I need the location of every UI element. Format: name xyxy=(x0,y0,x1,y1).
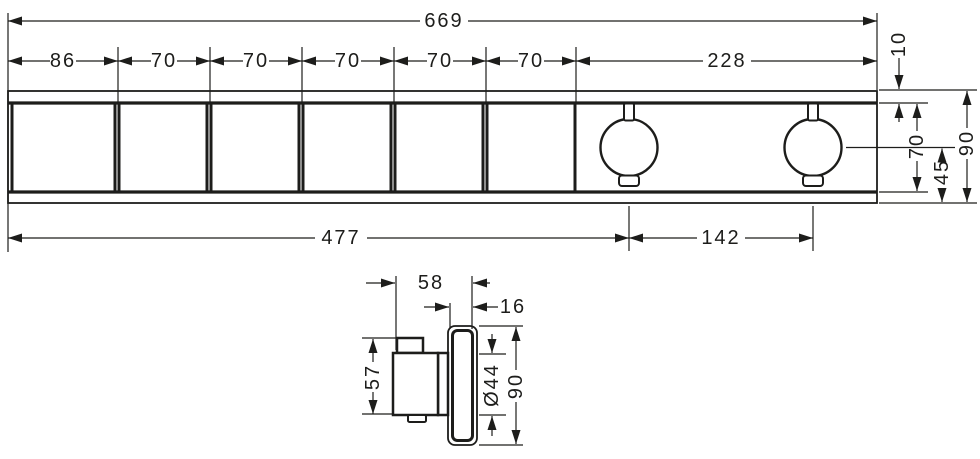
extension-lines-front xyxy=(8,13,977,252)
handle-side-profile xyxy=(393,326,477,445)
dim-side-height: 90 xyxy=(505,327,527,444)
select-button-3 xyxy=(211,103,299,192)
handle-adapter xyxy=(438,353,448,415)
dim-label-70-4: 70 xyxy=(427,50,453,72)
dim-label-142: 142 xyxy=(701,227,740,249)
select-button-2 xyxy=(119,103,207,192)
dim-handle-diameter: Ø44 xyxy=(481,334,503,436)
thermostat-knob-grip xyxy=(619,176,639,187)
plate-side-inner xyxy=(453,331,473,441)
escutcheon-plate-front xyxy=(8,91,877,203)
dim-segments: 86 70 70 70 70 70 228 xyxy=(8,50,877,72)
dim-half-height: 45 xyxy=(931,149,953,203)
dim-total-width: 669 xyxy=(8,10,877,32)
front-view: 669 86 70 70 70 70 70 228 xyxy=(8,10,978,252)
select-button-1 xyxy=(12,103,115,192)
side-view: 58 16 57 Ø44 xyxy=(362,272,527,445)
dim-label-669: 669 xyxy=(424,10,463,32)
dim-label-58: 58 xyxy=(418,272,444,294)
dim-label-228: 228 xyxy=(707,50,746,72)
dim-knob-positions: 477 142 xyxy=(8,227,813,249)
dim-label-70-5: 70 xyxy=(518,50,544,72)
technical-drawing-page: 669 86 70 70 70 70 70 228 xyxy=(0,0,980,459)
dim-total-height: 90 xyxy=(956,91,978,202)
dim-plate-thickness: 16 xyxy=(424,296,526,318)
select-button-4 xyxy=(303,103,391,192)
volume-knob xyxy=(785,119,842,176)
thermostat-knob xyxy=(601,119,658,176)
dim-label-90-side: 90 xyxy=(505,373,527,399)
dim-label-16: 16 xyxy=(500,296,526,318)
dim-label-86: 86 xyxy=(50,50,76,72)
dim-inner-height: 70 xyxy=(906,104,928,191)
dim-handle-height: 57 xyxy=(362,339,384,414)
select-button-6 xyxy=(487,103,575,192)
volume-knob-grip xyxy=(803,176,823,187)
dim-label-70-2: 70 xyxy=(243,50,269,72)
dim-label-70-right: 70 xyxy=(906,133,928,159)
thermostat-knob-stem xyxy=(624,104,634,121)
dim-label-477: 477 xyxy=(321,227,360,249)
dim-label-70-1: 70 xyxy=(151,50,177,72)
dim-label-57: 57 xyxy=(362,364,384,390)
dim-label-70-3: 70 xyxy=(335,50,361,72)
handle-body xyxy=(393,353,438,415)
dim-label-10: 10 xyxy=(888,31,910,57)
dim-offset-top: 10 xyxy=(888,31,910,122)
plate-outline xyxy=(8,91,877,203)
dim-label-90-right: 90 xyxy=(956,130,978,156)
select-button-5 xyxy=(395,103,483,192)
dimension-drawing: 669 86 70 70 70 70 70 228 xyxy=(0,0,980,459)
dim-label-45: 45 xyxy=(931,159,953,185)
handle-bottom-tab xyxy=(408,415,426,422)
handle-step xyxy=(397,338,423,353)
volume-knob-stem xyxy=(808,104,818,121)
dim-label-d44: Ø44 xyxy=(481,363,503,407)
